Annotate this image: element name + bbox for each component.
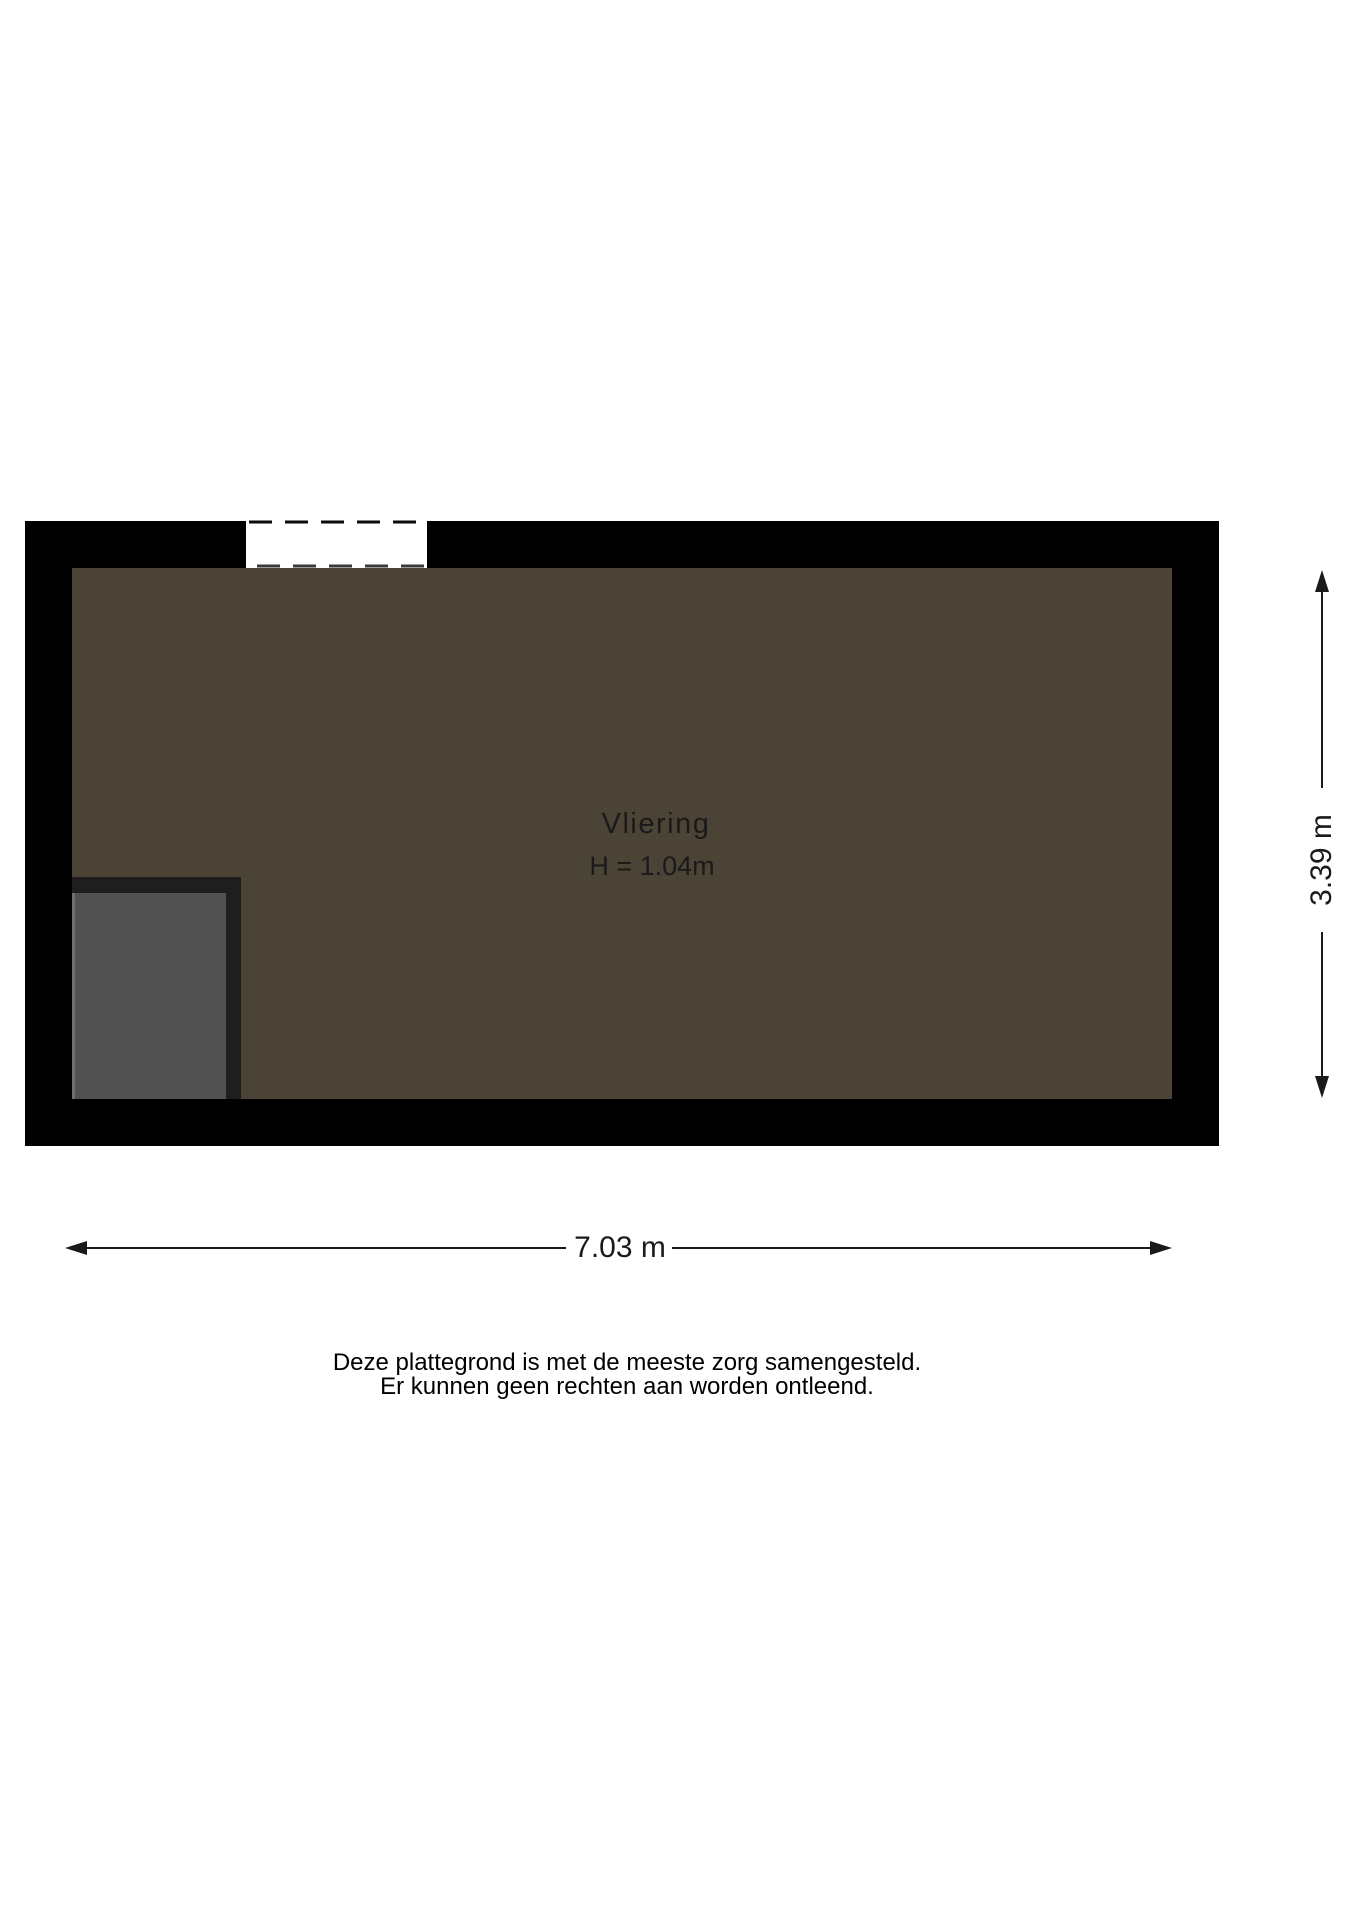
arrowhead-right-icon: [1150, 1241, 1172, 1255]
room-height-label: H = 1.04m: [552, 850, 752, 882]
height-dimension-label: 3.39 m: [1307, 780, 1337, 940]
disclaimer-line-1: Deze plattegrond is met de meeste zorg s…: [127, 1351, 1127, 1375]
arrowhead-down-icon: [1315, 1076, 1329, 1098]
roof-opening-dashes: [246, 520, 427, 568]
stair-hatch: [72, 893, 226, 1099]
width-dimension-label: 7.03 m: [520, 1232, 720, 1264]
roof-opening: [246, 520, 427, 568]
room-name-label: Vliering: [556, 806, 756, 842]
disclaimer-text: Deze plattegrond is met de meeste zorg s…: [127, 1351, 1127, 1399]
arrowhead-up-icon: [1315, 570, 1329, 592]
arrowhead-left-icon: [65, 1241, 87, 1255]
stair-hatch-edge-highlight: [72, 893, 75, 1099]
floor-plan-page: Vliering H = 1.04m 3.39 m 7.03 m Deze pl…: [0, 0, 1358, 1920]
disclaimer-line-2: Er kunnen geen rechten aan worden ontlee…: [127, 1375, 1127, 1399]
